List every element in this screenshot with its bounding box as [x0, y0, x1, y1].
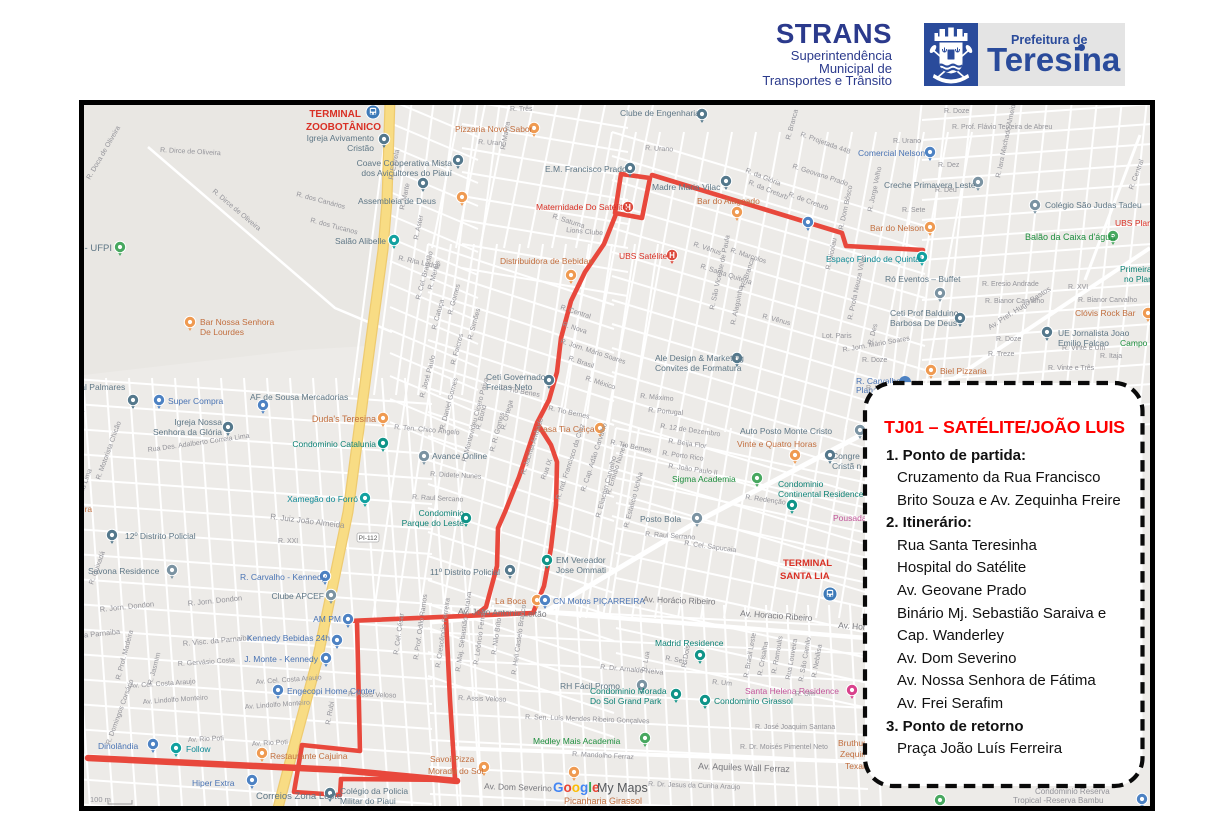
- svg-text:Sigma Academia: Sigma Academia: [672, 474, 736, 484]
- svg-text:EM Vereador: EM Vereador: [556, 555, 606, 565]
- svg-text:De Lourdes: De Lourdes: [200, 327, 244, 337]
- svg-text:R. Dez: R. Dez: [938, 162, 960, 169]
- svg-text:UBS Plan: UBS Plan: [1115, 218, 1152, 228]
- svg-text:Biel Pizzaria: Biel Pizzaria: [940, 366, 987, 376]
- svg-text:Cristã n: Cristã n: [832, 461, 862, 471]
- svg-text:Primeira I: Primeira I: [1120, 264, 1155, 274]
- svg-text:Igreja Nossa: Igreja Nossa: [174, 417, 222, 427]
- svg-text:Posto Bola: Posto Bola: [640, 514, 681, 524]
- svg-text:Ceti Governado: Ceti Governado: [486, 372, 546, 382]
- svg-text:Madre Maria Vilac: Madre Maria Vilac: [652, 182, 721, 192]
- svg-text:R. Prof. Flávio Teixeira de Ab: R. Prof. Flávio Teixeira de Abreu: [952, 124, 1052, 131]
- svg-text:CN Motos PIÇARREIRA: CN Motos PIÇARREIRA: [553, 596, 645, 606]
- svg-text:R. José Joaquim Santana: R. José Joaquim Santana: [755, 724, 835, 731]
- svg-text:R. Itaja: R. Itaja: [1100, 353, 1122, 360]
- svg-text:Santa Helena Residence: Santa Helena Residence: [745, 686, 839, 696]
- svg-text:Kennedy Bebidas 24h: Kennedy Bebidas 24h: [247, 633, 330, 643]
- svg-text:Bar do Alagoado: Bar do Alagoado: [697, 196, 760, 206]
- svg-text:Bar Nossa Senhora: Bar Nossa Senhora: [200, 317, 274, 327]
- svg-text:J. Monte - Kennedy: J. Monte - Kennedy: [244, 654, 318, 664]
- svg-text:Cristão: Cristão: [347, 143, 374, 153]
- svg-text:Condominio: Condominio: [419, 508, 465, 518]
- svg-text:Creche Primavera Leste: Creche Primavera Leste: [884, 180, 976, 190]
- svg-text:Xamegão do Forró: Xamegão do Forró: [287, 494, 358, 504]
- svg-text:ZOOBOTÂNICO: ZOOBOTÂNICO: [306, 120, 381, 133]
- svg-text:PI-112: PI-112: [359, 535, 378, 542]
- svg-text:R. Carvalho - Kennedy: R. Carvalho - Kennedy: [240, 572, 327, 582]
- svg-text:R. Sete: R. Sete: [902, 207, 925, 214]
- svg-text:Militar do Piaui: Militar do Piaui: [340, 796, 396, 806]
- svg-text:TERMINAL: TERMINAL: [783, 558, 832, 569]
- svg-text:R. Déu: R. Déu: [935, 187, 957, 194]
- svg-text:Condominio Morada: Condominio Morada: [590, 686, 667, 696]
- svg-text:R. Doze: R. Doze: [944, 108, 969, 115]
- svg-text:Igreja Avivamento: Igreja Avivamento: [307, 133, 375, 143]
- svg-text:Follow: Follow: [186, 744, 211, 754]
- svg-text:Condominio Catalunia: Condominio Catalunia: [292, 439, 376, 449]
- svg-text:R. Três: R. Três: [510, 106, 533, 113]
- svg-text:Tropical -Reserva Bambu: Tropical -Reserva Bambu: [1013, 796, 1103, 805]
- svg-text:Do Sol Grand Park: Do Sol Grand Park: [590, 696, 662, 706]
- svg-text:Medley Mais Academia: Medley Mais Academia: [533, 736, 621, 746]
- svg-text:Duda's Teresina: Duda's Teresina: [312, 414, 376, 424]
- svg-text:Bar do Nelson: Bar do Nelson: [870, 223, 924, 233]
- svg-text:Congre: Congre: [832, 451, 860, 461]
- svg-text:Clube APCEF: Clube APCEF: [272, 591, 324, 601]
- svg-text:Condominio: Condominio: [778, 479, 824, 489]
- svg-text:R. Bianor Carvalho: R. Bianor Carvalho: [1078, 297, 1137, 304]
- svg-text:Zequin: Zequin: [840, 749, 866, 759]
- svg-text:Pousada: Pousada: [833, 513, 867, 523]
- svg-text:Barbosa De Deus: Barbosa De Deus: [890, 318, 957, 328]
- svg-text:R. XVI: R. XVI: [1068, 284, 1088, 291]
- svg-text:Jose Ommati: Jose Ommati: [556, 565, 606, 575]
- svg-text:Picanharia Girassol: Picanharia Girassol: [564, 796, 642, 806]
- svg-text:Campo de: Campo de: [1120, 338, 1155, 348]
- svg-text:Condominio Reserva: Condominio Reserva: [1035, 787, 1110, 796]
- svg-text:Senhora da Glória: Senhora da Glória: [153, 427, 222, 437]
- svg-text:Salão Alibelle: Salão Alibelle: [335, 236, 386, 246]
- svg-text:Espaço Fundo de Quintal: Espaço Fundo de Quintal: [826, 254, 922, 264]
- svg-text:Savoi Pizza: Savoi Pizza: [430, 754, 475, 764]
- svg-text:Ró Eventos – Buffet: Ró Eventos – Buffet: [885, 274, 961, 284]
- svg-text:Avance Online: Avance Online: [432, 451, 487, 461]
- svg-text:11º Distrito Policial: 11º Distrito Policial: [430, 567, 500, 577]
- svg-text:Dinolândia: Dinolândia: [98, 741, 138, 751]
- svg-text:Ale Design & Marketing: Ale Design & Marketing: [655, 353, 744, 363]
- svg-text:Hiper Extra: Hiper Extra: [192, 778, 235, 788]
- svg-text:R. Dr. Moisés Pimentel Neto: R. Dr. Moisés Pimentel Neto: [740, 744, 828, 751]
- svg-text:My Maps: My Maps: [597, 781, 648, 795]
- svg-text:AM PM: AM PM: [313, 614, 341, 624]
- svg-text:Google: Google: [553, 780, 600, 795]
- svg-text:Convites de Formatura: Convites de Formatura: [655, 363, 742, 373]
- svg-text:Continental Residence: Continental Residence: [778, 489, 864, 499]
- svg-text:no Plan: no Plan: [1124, 274, 1153, 284]
- svg-text:dos Avicultores do Piauí: dos Avicultores do Piauí: [361, 168, 452, 178]
- svg-text:H: H: [669, 251, 675, 260]
- svg-text:R. Urano: R. Urano: [645, 145, 673, 153]
- svg-text:R. Urano: R. Urano: [893, 138, 921, 145]
- svg-text:dencial Palmares: dencial Palmares: [79, 382, 125, 392]
- svg-text:Super Compra: Super Compra: [168, 396, 224, 406]
- svg-text:Pizzaria Novo Sabor: Pizzaria Novo Sabor: [455, 124, 533, 134]
- svg-text:Comercial Nelson: Comercial Nelson: [858, 148, 925, 158]
- svg-text:AF de Sousa Mercadorias: AF de Sousa Mercadorias: [250, 392, 348, 402]
- svg-text:Assembleia de Deus: Assembleia de Deus: [358, 196, 436, 206]
- svg-text:Clóvis Rock Bar: Clóvis Rock Bar: [1075, 308, 1136, 318]
- svg-text:Auto Posto Monte Cristo: Auto Posto Monte Cristo: [740, 426, 832, 436]
- svg-text:Clube de Engenharia: Clube de Engenharia: [620, 108, 700, 118]
- svg-text:Parque do Leste: Parque do Leste: [402, 518, 465, 528]
- svg-text:R. XXI: R. XXI: [278, 538, 298, 545]
- svg-text:Restaurante Cajuina: Restaurante Cajuina: [270, 751, 348, 761]
- svg-text:R. Vinte e Um: R. Vinte e Um: [1062, 345, 1106, 352]
- svg-text:Vinte e Quatro Horas: Vinte e Quatro Horas: [737, 439, 817, 449]
- svg-text:UBS Satélite: UBS Satélite: [619, 251, 667, 261]
- svg-text:UE Jornalista Joao: UE Jornalista Joao: [1058, 328, 1130, 338]
- svg-text:Lot. Paris: Lot. Paris: [822, 333, 852, 340]
- svg-text:Correios Zona Leste: Correios Zona Leste: [256, 791, 342, 802]
- svg-text:Ceti Prof Balduino: Ceti Prof Balduino: [890, 308, 959, 318]
- svg-text:Condominio Girassol: Condominio Girassol: [714, 696, 793, 706]
- svg-text:R. Vinte e Três: R. Vinte e Três: [1048, 365, 1095, 372]
- svg-text:R. Um: R. Um: [795, 691, 815, 698]
- svg-text:R. Eresio Andrade: R. Eresio Andrade: [982, 281, 1039, 288]
- svg-text:Morada do Sol: Morada do Sol: [428, 766, 483, 776]
- svg-text:SANTA LIA: SANTA LIA: [780, 571, 830, 582]
- svg-text:12º Distrito Policial: 12º Distrito Policial: [125, 531, 196, 541]
- svg-text:R. Doze: R. Doze: [996, 336, 1021, 343]
- svg-text:Colégio da Policia: Colégio da Policia: [340, 786, 408, 796]
- svg-text:R. Doze: R. Doze: [862, 357, 887, 364]
- svg-text:E.M. Francisco Prado: E.M. Francisco Prado: [545, 164, 627, 174]
- svg-text:Colégio São Judas Tadeu: Colégio São Judas Tadeu: [1045, 200, 1142, 210]
- svg-text:Distribuidora de Bebidas: Distribuidora de Bebidas: [500, 256, 593, 266]
- svg-text:R. Treze: R. Treze: [988, 351, 1015, 358]
- svg-text:TERMINAL: TERMINAL: [309, 109, 361, 120]
- svg-text:Coave Cooperativa Mista: Coave Cooperativa Mista: [357, 158, 453, 168]
- svg-text:Balão da Caixa d'água: Balão da Caixa d'água: [1025, 232, 1115, 242]
- svg-text:Maternidade Do Satélite: Maternidade Do Satélite: [536, 202, 627, 212]
